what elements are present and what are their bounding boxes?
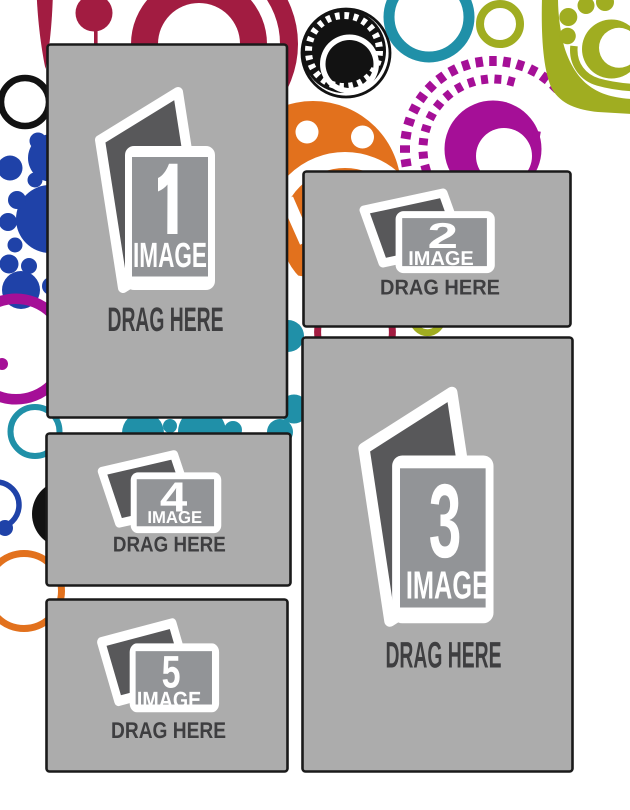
svg-text:DRAG HERE: DRAG HERE — [385, 633, 501, 675]
svg-text:IMAGE: IMAGE — [408, 248, 474, 270]
svg-text:DRAG HERE: DRAG HERE — [111, 718, 226, 744]
svg-text:DRAG HERE: DRAG HERE — [113, 532, 226, 557]
svg-text:IMAGE: IMAGE — [133, 236, 207, 275]
svg-text:IMAGE: IMAGE — [137, 687, 201, 713]
svg-text:IMAGE: IMAGE — [147, 507, 202, 527]
svg-text:DRAG HERE: DRAG HERE — [380, 275, 500, 299]
svg-text:DRAG HERE: DRAG HERE — [108, 301, 224, 339]
svg-text:IMAGE: IMAGE — [406, 563, 489, 607]
